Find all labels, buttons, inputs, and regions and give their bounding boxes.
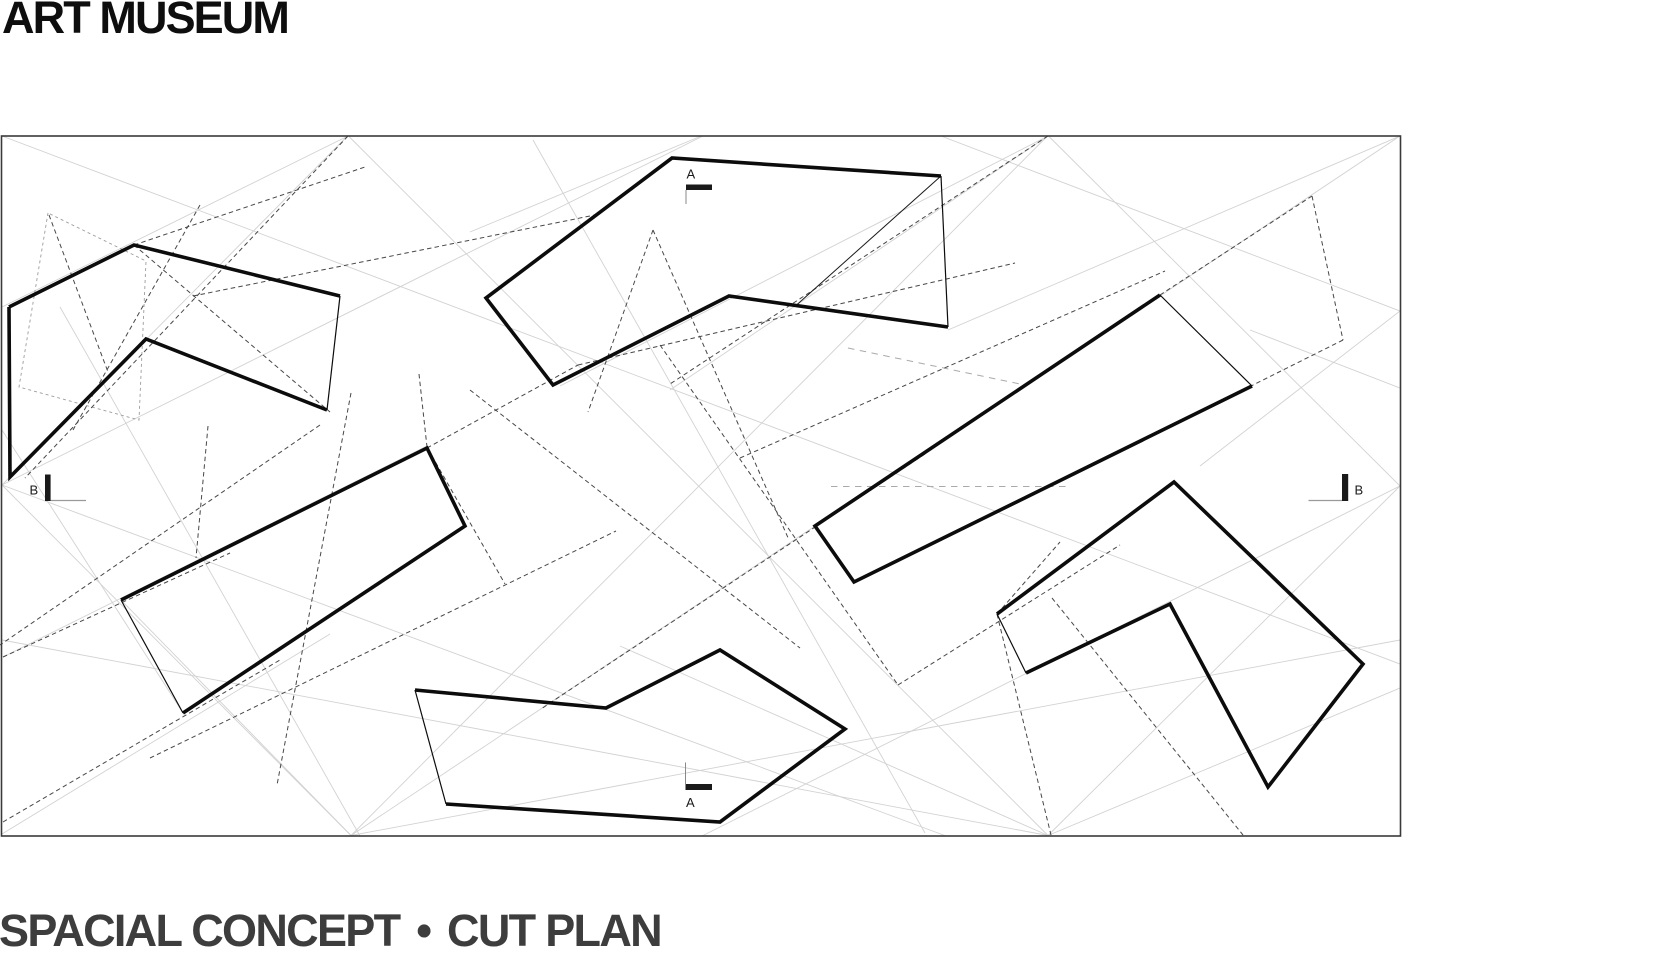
- svg-text:A: A: [686, 795, 695, 810]
- svg-text:B: B: [1355, 483, 1364, 498]
- svg-text:A: A: [687, 167, 696, 182]
- svg-text:B: B: [30, 483, 39, 498]
